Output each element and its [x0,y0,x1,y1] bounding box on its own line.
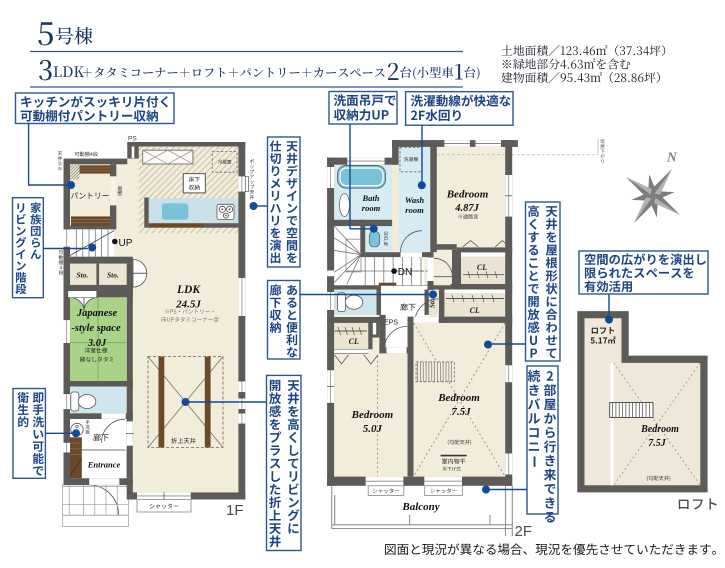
svg-text:Bedroom: Bedroom [351,409,394,421]
svg-text:Bedroom: Bedroom [446,189,489,201]
svg-text:Japanese: Japanese [76,308,118,319]
svg-text:CL: CL [477,263,487,272]
svg-text:CL: CL [349,337,359,346]
svg-text:5.0J: 5.0J [363,423,383,435]
svg-text:Bath: Bath [361,193,379,203]
svg-text:N: N [666,150,678,165]
svg-text:4.87J: 4.87J [454,203,479,214]
svg-text:2F: 2F [515,523,533,540]
svg-text:UP: UP [119,238,133,249]
svg-text:Bedroom: Bedroom [640,424,679,435]
svg-text:1F: 1F [226,502,244,519]
svg-text:CL: CL [470,306,480,315]
svg-text:24.5J: 24.5J [175,299,201,311]
svg-text:7.5J: 7.5J [648,438,667,449]
svg-text:3.0J: 3.0J [87,338,107,349]
svg-text:LDK: LDK [176,284,201,296]
svg-text:EPS: EPS [384,320,398,327]
svg-text:-style space: -style space [71,323,121,334]
svg-text:Entrance: Entrance [87,460,121,470]
svg-text:Sto.: Sto. [76,271,88,280]
svg-text:PS: PS [128,136,137,143]
svg-text:7.5J: 7.5J [451,406,471,418]
svg-text:room: room [362,203,381,213]
svg-text:Sto.: Sto. [107,271,119,280]
svg-text:Balcony: Balcony [401,501,439,513]
svg-text:room: room [405,205,424,215]
svg-text:Wash: Wash [405,195,424,205]
svg-text:Bedroom: Bedroom [437,392,480,404]
svg-text:DN: DN [398,267,412,278]
